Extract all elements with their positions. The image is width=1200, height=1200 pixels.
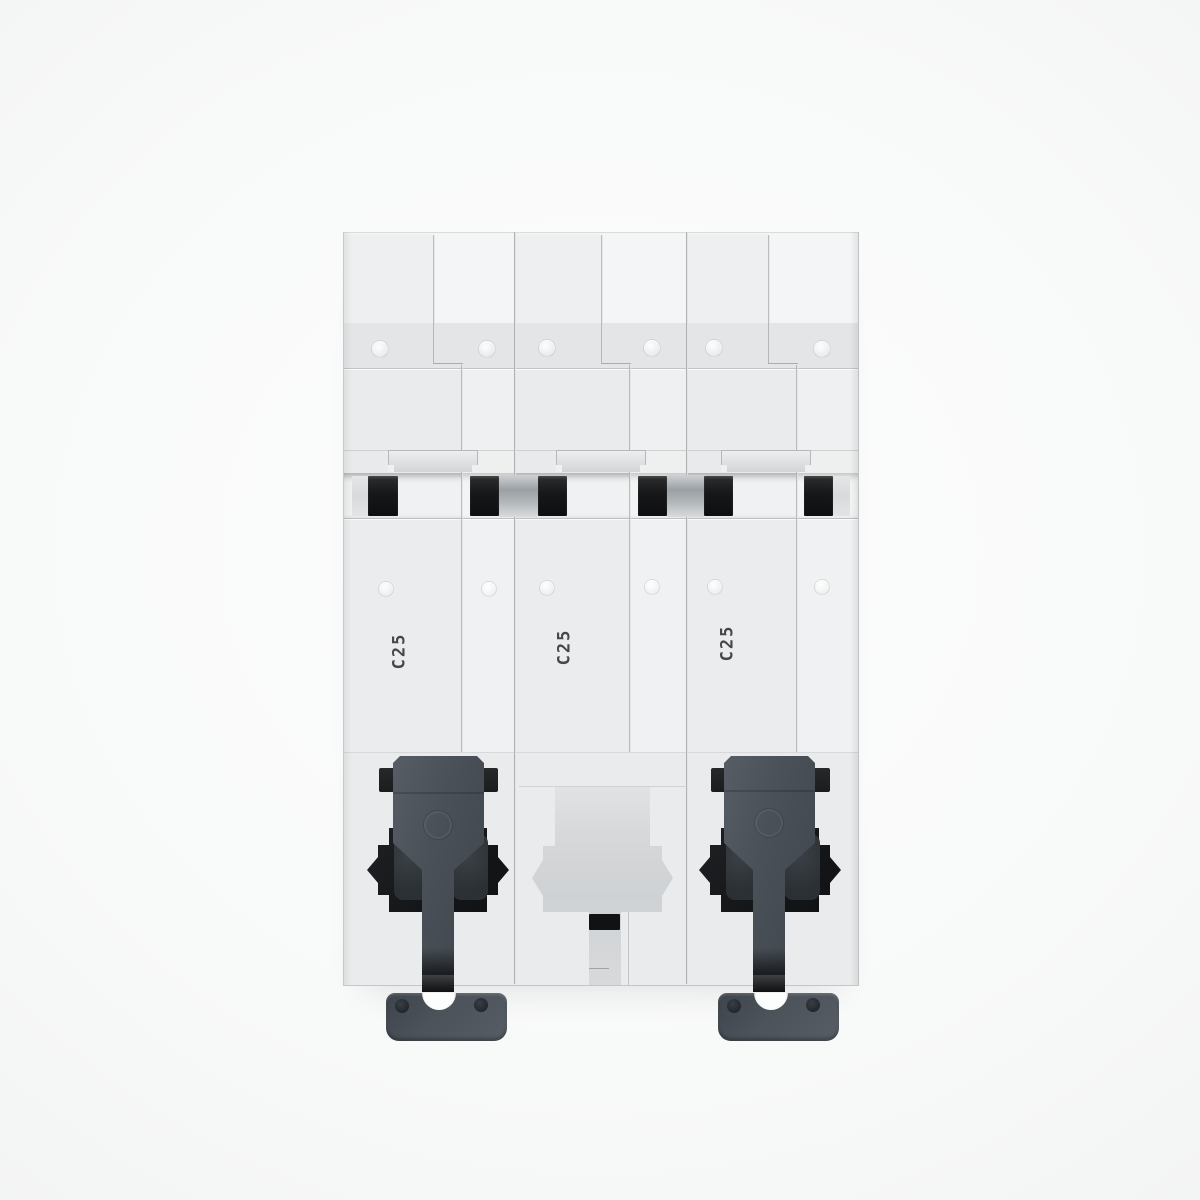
contact-strip [499,475,538,517]
clip-ridge [393,792,484,794]
mold-seam-step [601,363,631,365]
pin-mark [643,339,661,357]
mold-seam [768,235,770,363]
pin-mark [478,340,496,358]
half-shell-shade [461,368,515,752]
pin-mark [539,580,555,596]
pull-tab-dimple [727,999,741,1013]
mold-line [344,752,858,753]
clip-stamp-mark [423,810,453,840]
housing-mid-section [344,368,858,450]
laser-marking-module-1: C25 [384,618,414,684]
mold-seam [629,365,631,752]
clip-pull-tab-right [718,993,839,1041]
rail-tab [721,450,811,472]
rail-channel-recess [344,473,858,518]
contact-strip [667,475,704,517]
mold-seam-step [768,363,798,365]
mold-seam [461,365,463,752]
rail-slot [538,476,567,516]
recess-step-line [589,968,609,969]
laser-marking-module-3: C25 [712,610,742,676]
pull-tab-dimple [474,998,488,1012]
mold-line-highlight [344,519,858,520]
circuit-breaker-rear: C25 C25 C25 [343,232,859,986]
pin-mark [705,339,723,357]
mold-line-highlight [344,369,858,370]
clip-pull-tab-left [386,993,507,1041]
rail-slot [704,476,733,516]
pull-tab-notch [422,993,456,1010]
rail-slot [804,476,833,516]
half-shell-shade [629,368,687,752]
mold-seam [601,235,603,363]
pin-mark [538,339,556,357]
channel-shade [352,476,368,516]
rail-tab [388,450,478,472]
half-shell-shade [601,232,687,323]
half-shell-shade [768,232,858,323]
mold-seam [796,365,798,752]
recess-top-line [519,786,688,787]
recess-slot [589,914,620,930]
clip-stem-tip [422,948,454,992]
clip-ridge [724,790,815,792]
right-edge-shade [850,232,858,985]
pin-mark [644,579,660,595]
clip-stamp-mark [754,808,784,838]
mold-seam [433,235,435,363]
pull-tab-dimple [806,998,820,1012]
module-joint [686,232,688,984]
pin-mark [814,579,830,595]
housing-lower-section [344,518,858,752]
photo-background: C25 C25 C25 [0,0,1200,1200]
pin-mark [707,579,723,595]
pull-tab-dimple [395,999,409,1013]
module-joint [514,232,516,984]
pull-tab-notch [754,993,788,1010]
rail-slot [470,476,499,516]
pin-mark [378,581,394,597]
rail-slot [638,476,667,516]
pin-mark [371,340,389,358]
laser-marking-module-2: C25 [549,614,579,680]
pin-mark [813,340,831,358]
channel-shade [833,476,850,516]
pin-mark [481,581,497,597]
left-edge-shade [344,232,352,985]
rail-tab [556,450,646,472]
rail-slot [368,476,398,516]
clip-stem-tip [753,948,785,992]
mold-seam-step [433,363,463,365]
half-shell-shade [433,232,515,323]
half-shell-shade [796,368,858,752]
